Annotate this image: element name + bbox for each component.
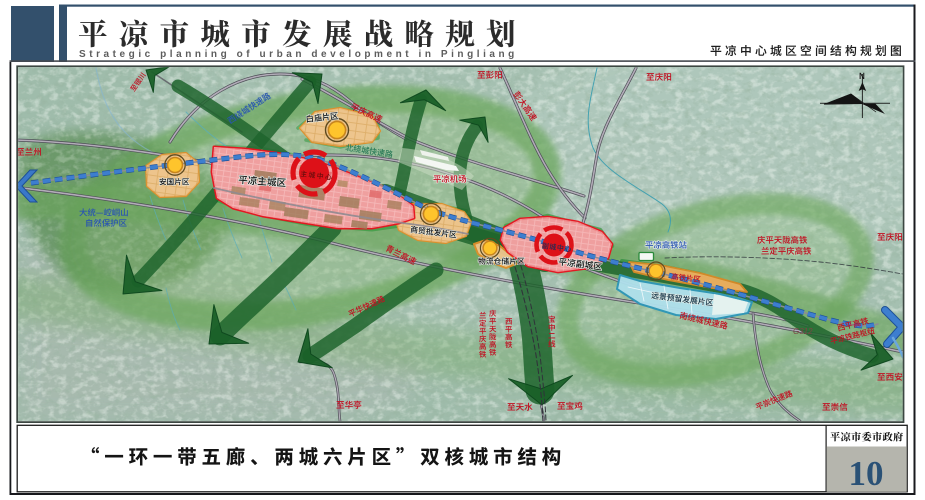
svg-text:G312: G312 (793, 327, 813, 336)
svg-text:Strategic planning of urban de: Strategic planning of urban development … (79, 49, 516, 60)
svg-text:10: 10 (849, 454, 884, 493)
